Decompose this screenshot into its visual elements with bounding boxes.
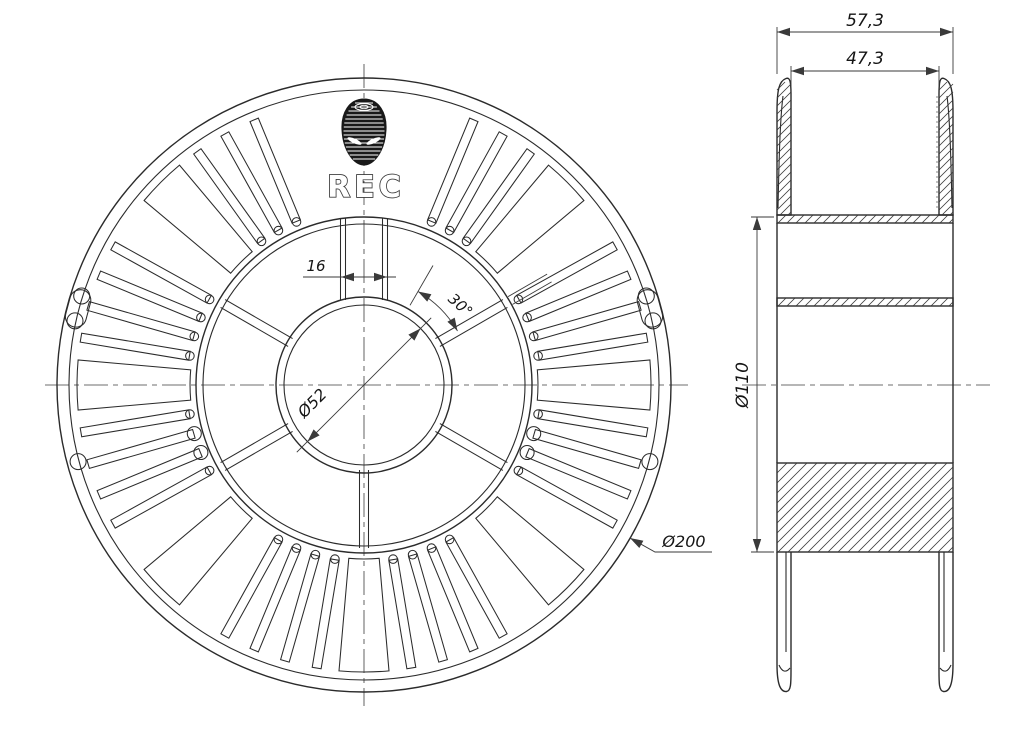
hatch-line [948, 547, 953, 552]
hatch-line [888, 487, 953, 552]
dim-arrowhead [374, 273, 387, 281]
logo-wordmark: REC [327, 170, 405, 205]
hatch-line [922, 215, 930, 223]
hatch-line [939, 108, 953, 122]
hatch-line [823, 298, 831, 306]
hatch-line [868, 298, 876, 306]
hatch-line [859, 298, 867, 306]
wedge-opening [476, 165, 584, 273]
hatch-line [877, 215, 885, 223]
hatch-line [777, 124, 791, 138]
hatch-line [895, 298, 903, 306]
hatch-line [918, 517, 953, 552]
hatch-line [778, 215, 786, 223]
hatch-line [778, 463, 867, 552]
hatch-line [777, 463, 857, 543]
hatch-line [777, 463, 817, 503]
right-flange-lower-detail [940, 552, 951, 671]
hatch-line [928, 527, 953, 552]
hatch-line [904, 215, 912, 223]
hatch-line [848, 463, 937, 552]
hatch-line [868, 215, 876, 223]
hatch-line [788, 463, 877, 552]
hatch-line [878, 477, 953, 552]
drawing-canvas: 16 Ø52 30° Ø200 REC [0, 0, 1023, 750]
hatch-line [777, 463, 827, 513]
hatch-line [777, 188, 791, 202]
hatch-line [898, 497, 953, 552]
hatch-line [939, 124, 953, 138]
front-view: 16 Ø52 30° Ø200 REC [45, 64, 712, 706]
hatch-line [939, 100, 953, 114]
hatch-line [922, 298, 930, 306]
side-view: 57,3 47,3 Ø110 [733, 11, 990, 692]
hatch-line [777, 196, 791, 210]
hatch-line [777, 463, 787, 473]
dim-arrowhead [791, 67, 804, 75]
vent-slot [428, 547, 478, 652]
hatch-line [832, 298, 840, 306]
vent-slot [221, 538, 282, 639]
angle-ext-line [508, 274, 547, 297]
hatch-line [777, 92, 791, 106]
inner-width-label: 47,3 [846, 49, 884, 69]
hatch-line [828, 463, 917, 552]
hub-spoke [221, 424, 289, 463]
vent-slot [538, 333, 648, 360]
wedge-opening [144, 497, 252, 605]
hub-spoke [440, 424, 508, 463]
hatch-line [777, 100, 791, 114]
dim-arrowhead [753, 539, 761, 552]
hatch-line [838, 463, 927, 552]
hatch-line [805, 298, 813, 306]
vent-slot [517, 242, 618, 303]
vent-slot [87, 302, 195, 341]
vent-slot [428, 118, 478, 223]
vent-slot [312, 559, 339, 669]
vent-slot [111, 242, 212, 303]
outer-diameter-label: Ø200 [661, 532, 705, 551]
vent-slot [517, 467, 618, 528]
hatch-line [832, 215, 840, 223]
hatch-line [904, 298, 912, 306]
hatch-line [777, 132, 791, 146]
barrel-diameter-label: Ø110 [733, 362, 753, 409]
hatch-line [940, 215, 948, 223]
vent-slot [97, 449, 202, 499]
vent-slot [97, 271, 202, 321]
hatch-line [814, 298, 822, 306]
dim-arrowhead [630, 538, 643, 548]
hatch-line [787, 215, 795, 223]
hub-spoke [225, 431, 293, 470]
hatch-line [939, 116, 953, 130]
hatch-line [841, 215, 849, 223]
vent-slot [446, 538, 507, 639]
vent-slot [526, 271, 631, 321]
hatch-line [808, 463, 897, 552]
hatch-line [939, 180, 953, 194]
technical-drawing: 16 Ø52 30° Ø200 REC [0, 0, 1023, 750]
hatch-line [850, 215, 858, 223]
vent-slot [533, 302, 641, 341]
dim-arrowhead [418, 292, 431, 302]
section-hatching [777, 82, 953, 552]
hatch-line [823, 215, 831, 223]
hatch-line [778, 298, 786, 306]
hatch-line [940, 298, 948, 306]
hatch-line [796, 215, 804, 223]
hatch-line [841, 298, 849, 306]
left-flange-lower-detail [779, 552, 790, 671]
vent-slot [250, 118, 300, 223]
logo-striations [344, 103, 385, 159]
vent-slot [526, 449, 631, 499]
hatch-line [886, 298, 894, 306]
rec-logo: REC [327, 99, 405, 205]
wedge-opening [476, 497, 584, 605]
hatch-line [814, 215, 822, 223]
hatch-line [787, 298, 795, 306]
hub-spoke [440, 307, 508, 346]
hub-spoke [225, 300, 293, 339]
hatch-line [913, 215, 921, 223]
vent-slot [389, 559, 416, 669]
dim-arrowhead [753, 217, 761, 230]
hub-spoke [435, 431, 503, 470]
wedge-opening [144, 165, 252, 273]
hatch-line [777, 108, 791, 122]
dim-arrowhead [926, 67, 939, 75]
vent-slot [446, 132, 507, 233]
vent-slot [533, 430, 641, 469]
hatch-line [931, 215, 939, 223]
hatch-line [805, 215, 813, 223]
hub-spoke [221, 307, 289, 346]
hatch-line [777, 463, 797, 483]
vent-slot [80, 410, 190, 437]
hatch-line [818, 463, 907, 552]
hatch-line [796, 298, 804, 306]
vent-slot [538, 410, 648, 437]
vent-slot [221, 132, 282, 233]
hatch-line [895, 215, 903, 223]
hatch-line [939, 132, 953, 146]
hatch-line [913, 298, 921, 306]
spoke-angle-label: 30° [444, 290, 476, 321]
rim-hole [638, 288, 654, 304]
hatch-line [939, 92, 953, 106]
hatch-line [939, 196, 953, 210]
hatch-line [777, 140, 791, 154]
hatch-line [850, 298, 858, 306]
vent-slot [409, 554, 448, 662]
spoke-width-label: 16 [306, 257, 325, 275]
hatch-line [931, 298, 939, 306]
dim-arrowhead [940, 28, 953, 36]
hatch-line [939, 188, 953, 202]
hatch-line [908, 507, 953, 552]
hatch-line [858, 463, 947, 552]
hub-diameter-label: Ø52 [293, 385, 330, 422]
hatch-line [777, 116, 791, 130]
dim-arrowhead [777, 28, 790, 36]
angle-ext-line [513, 282, 552, 305]
hatch-line [798, 463, 887, 552]
hatch-line [939, 84, 953, 98]
overall-width-label: 57,3 [846, 11, 884, 31]
vent-slot [87, 430, 195, 469]
rim-hole [74, 288, 90, 304]
vent-slot [250, 547, 300, 652]
hatch-line [886, 215, 894, 223]
hatch-line [859, 215, 867, 223]
vent-slot [80, 333, 190, 360]
dim-arrowhead [341, 273, 354, 281]
vent-slot [111, 467, 212, 528]
hatch-line [877, 298, 885, 306]
hatch-line [777, 463, 847, 533]
hatch-line [777, 463, 837, 523]
vent-slot [281, 554, 320, 662]
